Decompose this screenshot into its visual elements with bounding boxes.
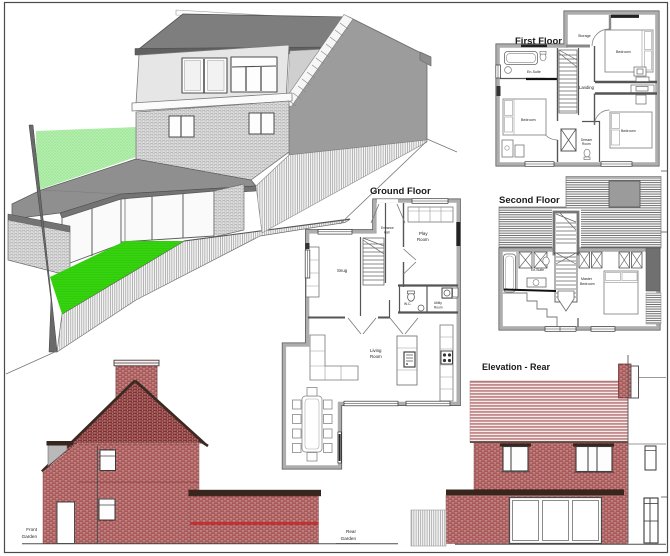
svg-text:Garden: Garden — [22, 534, 38, 539]
svg-text:Rear: Rear — [346, 529, 356, 534]
svg-text:W.C.: W.C. — [404, 302, 411, 306]
svg-text:Landing: Landing — [579, 85, 595, 90]
svg-text:Ground Floor: Ground Floor — [370, 186, 431, 197]
svg-text:Room: Room — [370, 354, 382, 359]
svg-text:Front: Front — [26, 527, 37, 532]
svg-text:Utility: Utility — [434, 301, 442, 305]
svg-text:Garden: Garden — [341, 536, 357, 541]
svg-text:Living: Living — [370, 348, 382, 353]
svg-text:En-Suite: En-Suite — [531, 268, 544, 272]
svg-text:Storage: Storage — [578, 34, 591, 38]
svg-text:Bedroom: Bedroom — [521, 118, 536, 122]
svg-text:Hall: Hall — [384, 231, 390, 235]
svg-text:Bedroom: Bedroom — [616, 50, 631, 54]
svg-text:Play: Play — [419, 231, 428, 236]
svg-text:Bedroom: Bedroom — [580, 282, 595, 286]
svg-text:Master: Master — [581, 277, 593, 281]
svg-text:En-Suite: En-Suite — [527, 70, 541, 74]
svg-text:Elevation - Rear: Elevation - Rear — [482, 362, 551, 372]
svg-text:Second Floor: Second Floor — [499, 195, 560, 206]
svg-text:Bedroom: Bedroom — [621, 129, 636, 133]
svg-text:Room: Room — [582, 142, 591, 146]
svg-text:Snug: Snug — [337, 268, 348, 273]
svg-text:Entrance: Entrance — [381, 226, 394, 230]
svg-text:Room: Room — [434, 306, 443, 310]
svg-text:Room: Room — [417, 237, 429, 242]
